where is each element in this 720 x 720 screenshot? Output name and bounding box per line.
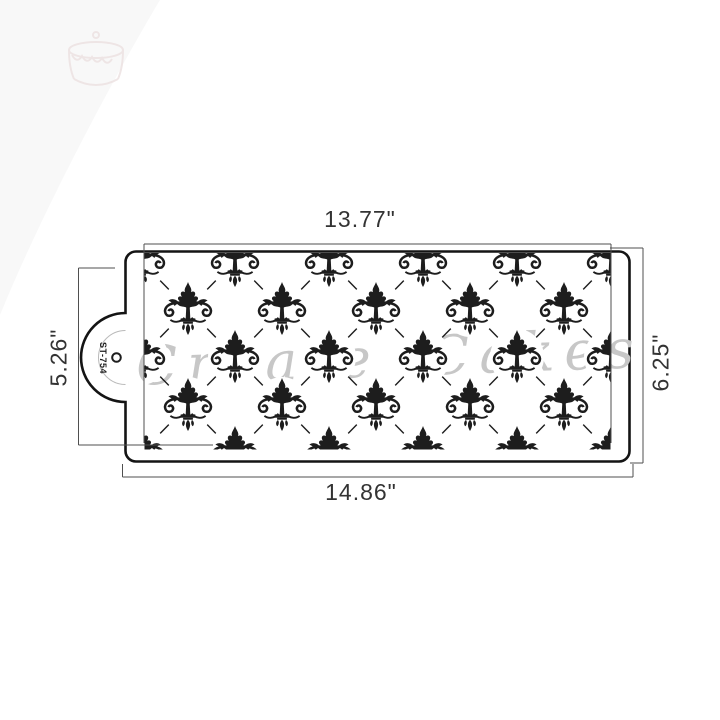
product-photo: Create Cakes 13.77" 14.86" 5.26" 6.25" S… <box>0 0 720 720</box>
stencil-diagram: Create Cakes <box>0 0 720 720</box>
dimension-label-top: 13.77" <box>260 206 460 233</box>
dimension-label-left: 5.26" <box>46 303 73 413</box>
dimension-label-bottom: 14.86" <box>261 479 461 506</box>
hanging-hole <box>112 353 121 362</box>
dimension-label-right: 6.25" <box>648 308 675 418</box>
tab-code-label: ST-754 <box>96 330 108 386</box>
